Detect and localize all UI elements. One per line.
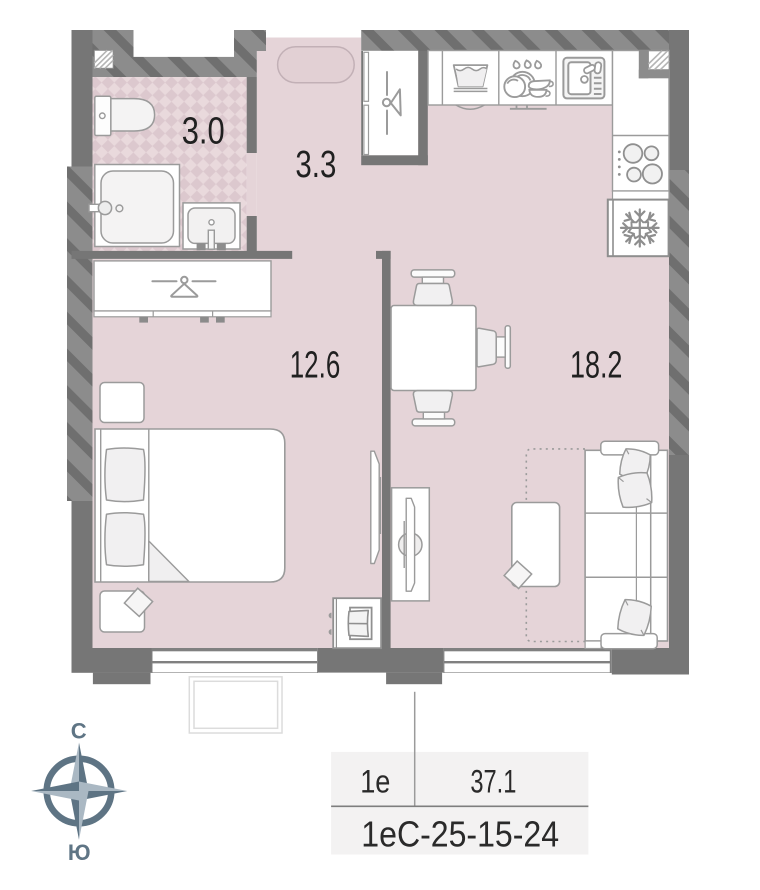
svg-text:12.6: 12.6: [290, 345, 341, 387]
svg-text:18.2: 18.2: [570, 345, 623, 387]
svg-text:1еС-25-15-24: 1еС-25-15-24: [361, 813, 559, 854]
svg-text:3.0: 3.0: [182, 111, 225, 153]
svg-text:Ю: Ю: [68, 840, 91, 865]
svg-text:3.3: 3.3: [295, 144, 336, 186]
svg-text:С: С: [71, 718, 87, 743]
svg-text:1е: 1е: [360, 764, 390, 800]
svg-text:37.1: 37.1: [470, 764, 516, 800]
